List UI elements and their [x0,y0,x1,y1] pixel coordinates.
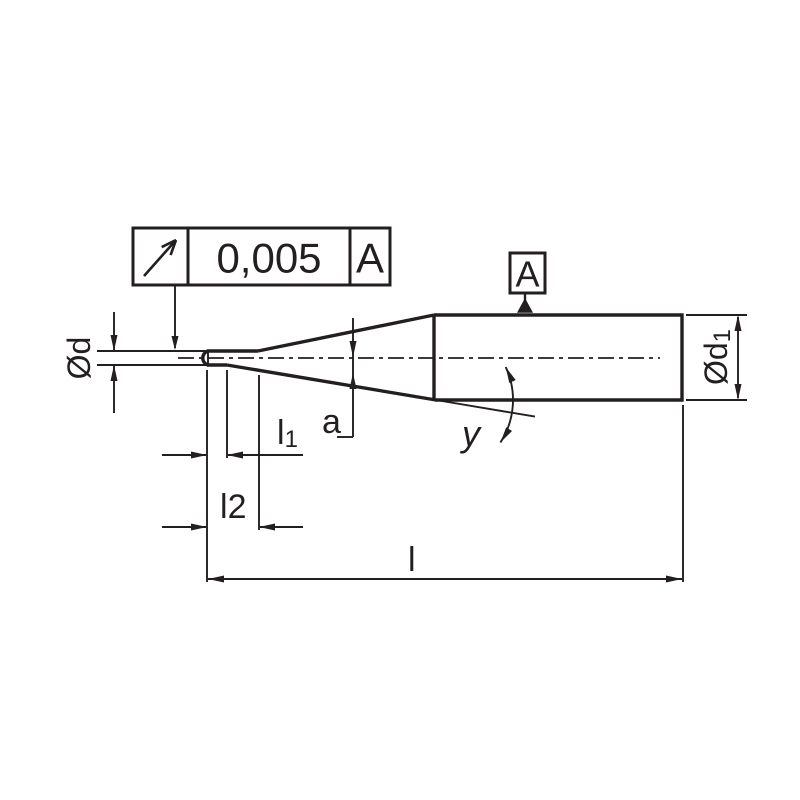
arrowhead-down-icon [111,335,118,351]
tool-outline [203,315,682,417]
svg-text:l1: l1 [277,414,298,453]
arrowhead-left-icon [259,524,275,531]
arrowhead-left-icon [227,452,243,459]
upper-taper-edge [258,315,434,351]
label-a: a [322,403,341,441]
arrowhead-up-icon [111,365,118,381]
datum-label: A [515,254,539,295]
dimension-taper-angle: y [459,367,516,454]
label-shank-diameter-sub: 1 [709,329,736,342]
arrowhead-ccw-icon [506,367,516,383]
svg-text:l2: l2 [220,488,246,526]
label-tip-diameter: Ød [61,337,97,380]
dimension-shank-diameter: Ød1 [686,315,747,400]
drawing-canvas: 0,005 A A Ød Ød1 [0,0,800,800]
datum-feature-symbol: A [510,253,545,313]
arrowhead-left-icon [208,576,224,583]
svg-text:Ød1: Ød1 [698,329,736,385]
label-y: y [459,413,482,454]
datum-triangle-icon [517,298,533,313]
tolerance-leader-arrowhead-icon [172,336,179,350]
dimension-flute-length: l1 [162,370,303,459]
label-l: l [408,541,416,579]
arrowhead-down-icon [350,341,357,357]
dimension-tip-diameter: Ød [61,312,207,413]
label-l2-sub: 2 [228,488,247,526]
label-l1-sub: 1 [285,426,298,453]
lower-taper-extension [436,400,535,417]
arrowhead-cw-icon [500,427,512,442]
arrowhead-right-icon [666,576,682,583]
arrowhead-right-icon [191,524,207,531]
arrowhead-right-icon [191,452,207,459]
label-l1: l [277,414,285,452]
arrowhead-up-icon [350,373,357,389]
arrowhead-down-icon [735,384,742,400]
dimension-neck-length: l2 [162,375,303,531]
technical-drawing: 0,005 A A Ød Ød1 [0,0,800,800]
circular-runout-icon [144,240,176,276]
label-shank-diameter: Ød [698,342,734,385]
arrowhead-up-icon [735,315,742,331]
tolerance-value: 0,005 [216,235,321,282]
label-l2: l [220,488,228,526]
tolerance-datum-ref: A [356,235,384,282]
